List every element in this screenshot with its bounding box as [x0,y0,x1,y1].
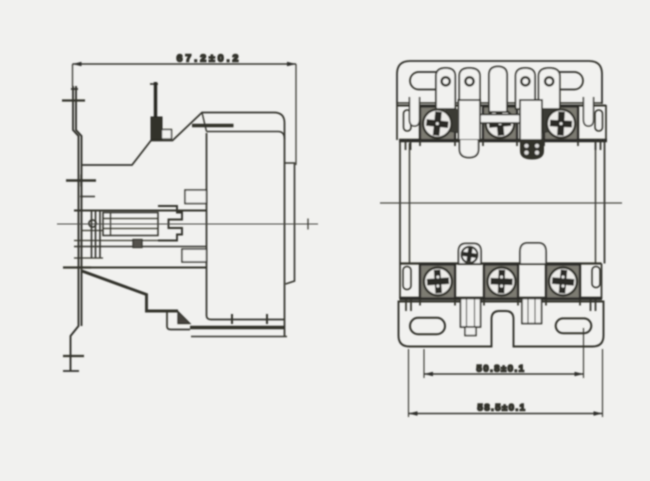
svg-text:58.5±0.1: 58.5±0.1 [478,403,527,414]
svg-text:50.8±0.1: 50.8±0.1 [477,364,526,375]
svg-text:67.2±0.2: 67.2±0.2 [177,53,242,65]
